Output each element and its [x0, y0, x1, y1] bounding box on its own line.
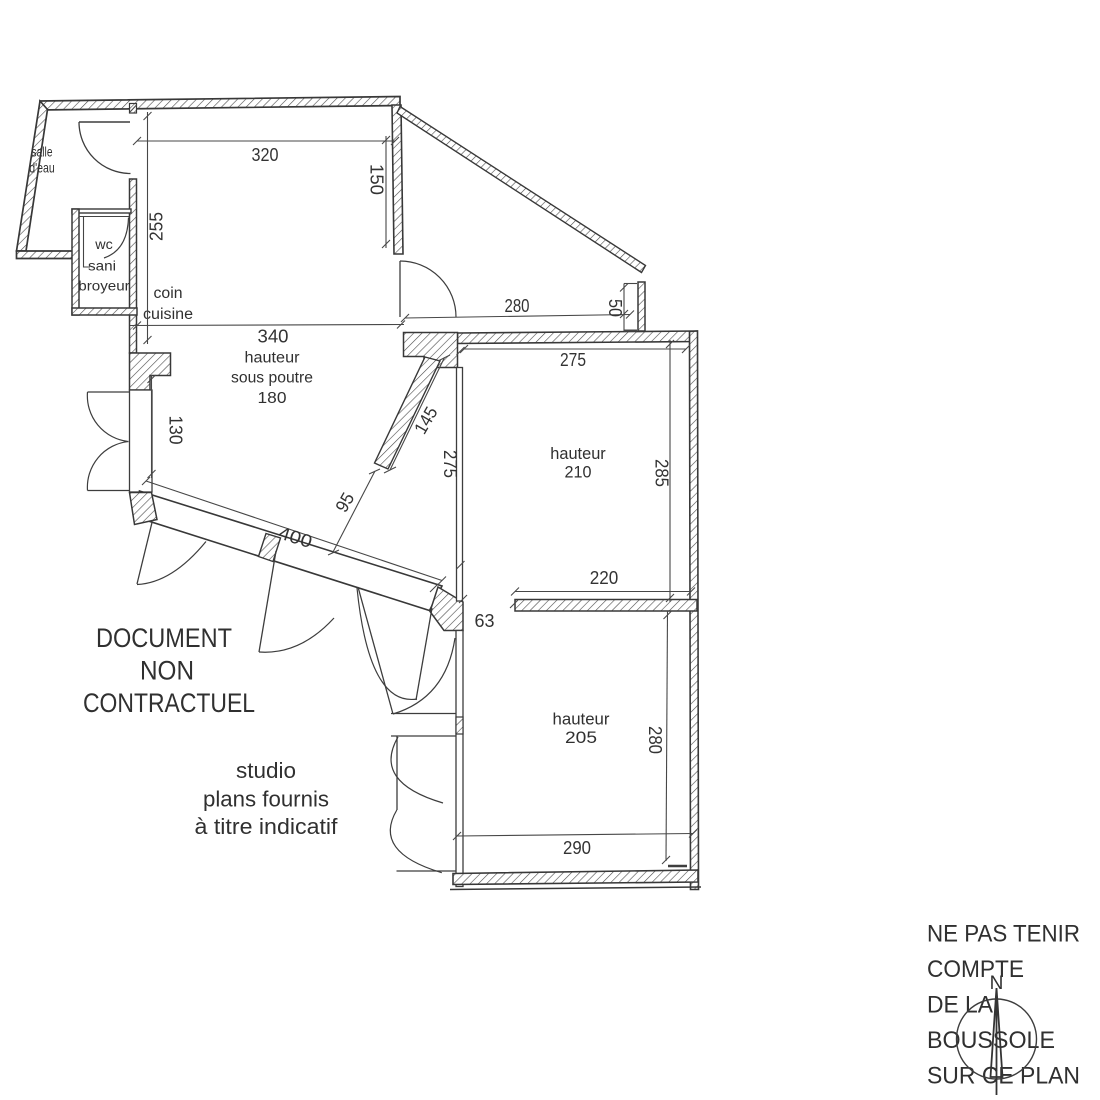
svg-text:studio: studio — [236, 758, 296, 783]
svg-text:290: 290 — [563, 838, 591, 858]
svg-text:sous poutre: sous poutre — [231, 370, 313, 387]
svg-text:255: 255 — [146, 212, 166, 241]
svg-text:plans fournis: plans fournis — [203, 787, 329, 812]
svg-text:wc: wc — [94, 237, 113, 252]
svg-text:salle: salle — [32, 144, 53, 160]
svg-text:NON: NON — [140, 656, 194, 686]
svg-text:broyeur: broyeur — [78, 279, 130, 294]
svg-text:340: 340 — [258, 327, 289, 347]
svg-text:hauteur: hauteur — [550, 445, 606, 463]
svg-text:sani: sani — [88, 259, 116, 274]
svg-text:hauteur: hauteur — [553, 711, 611, 729]
svg-text:150: 150 — [366, 164, 386, 195]
svg-text:DOCUMENT: DOCUMENT — [96, 623, 232, 653]
svg-text:320: 320 — [252, 145, 279, 165]
svg-text:coin: coin — [154, 285, 183, 302]
svg-text:NE PAS TENIR: NE PAS TENIR — [927, 921, 1080, 948]
svg-text:SUR CE PLAN: SUR CE PLAN — [927, 1063, 1080, 1090]
svg-text:130: 130 — [165, 416, 185, 445]
svg-text:180: 180 — [258, 390, 287, 407]
svg-text:280: 280 — [645, 726, 665, 754]
svg-text:à titre indicatif: à titre indicatif — [195, 814, 339, 839]
svg-text:205: 205 — [565, 729, 597, 747]
svg-text:275: 275 — [440, 450, 460, 478]
svg-text:CONTRACTUEL: CONTRACTUEL — [83, 688, 255, 718]
svg-text:220: 220 — [590, 568, 619, 588]
svg-text:hauteur: hauteur — [245, 350, 300, 367]
svg-text:N: N — [990, 973, 1004, 994]
svg-text:210: 210 — [565, 464, 592, 482]
svg-text:275: 275 — [560, 350, 586, 370]
svg-text:50: 50 — [605, 299, 625, 317]
svg-text:DE LA: DE LA — [927, 992, 993, 1019]
svg-text:COMPTE: COMPTE — [927, 956, 1024, 983]
svg-text:280: 280 — [505, 296, 530, 316]
svg-text:d'eau: d'eau — [29, 160, 55, 176]
svg-text:63: 63 — [475, 611, 495, 631]
svg-text:285: 285 — [651, 459, 671, 487]
svg-text:cuisine: cuisine — [143, 306, 193, 323]
